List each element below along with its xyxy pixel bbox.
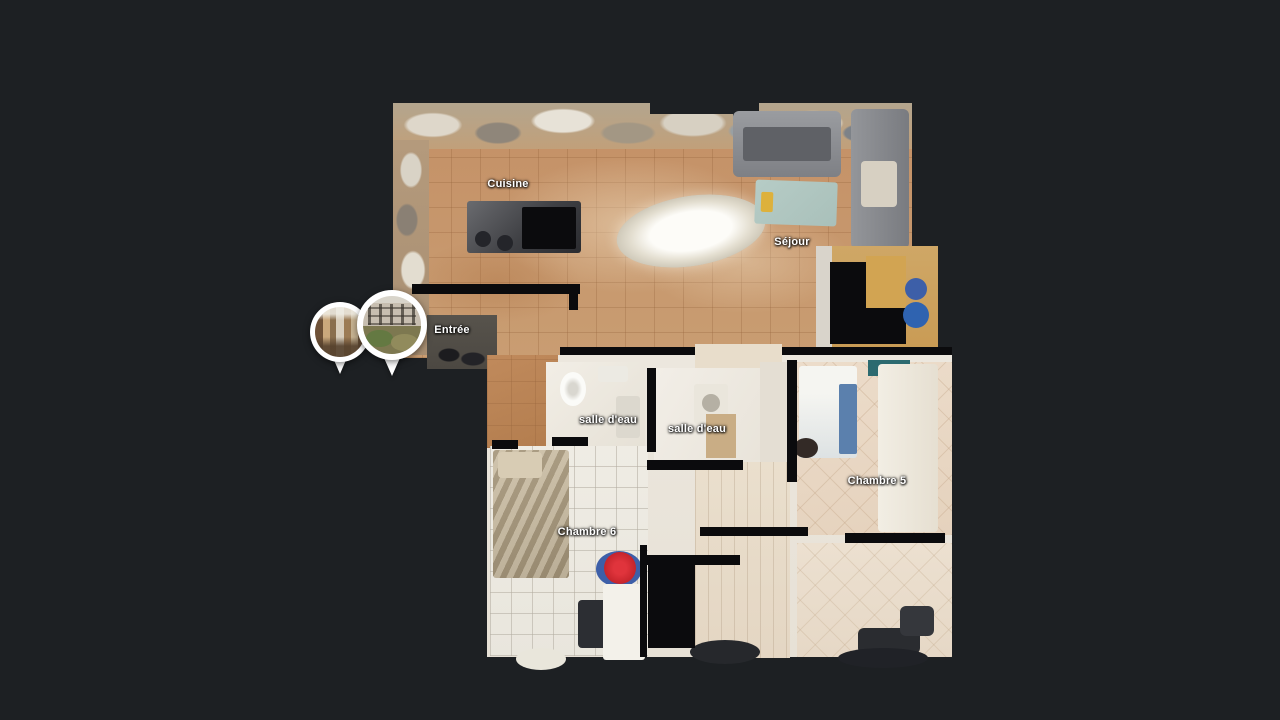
- sofa: [851, 109, 909, 249]
- stool: [497, 235, 513, 251]
- building-windows: [368, 304, 417, 325]
- sink: [598, 366, 628, 382]
- room-label-chambre-5: Chambre 5: [848, 475, 907, 487]
- sofa-cushion: [861, 161, 897, 207]
- sofa-seat: [743, 127, 831, 161]
- room-label-sejour: Séjour: [774, 236, 809, 248]
- floorplan[interactable]: Cuisine Séjour Entrée salle d'eau salle …: [0, 0, 1280, 720]
- wall: [647, 460, 743, 470]
- desk: [603, 584, 645, 660]
- photo-pin-building[interactable]: [357, 290, 427, 390]
- lawn: [391, 334, 418, 350]
- chair: [905, 278, 927, 300]
- stool: [475, 231, 491, 247]
- kitchen-island: [467, 201, 581, 253]
- wall: [412, 284, 580, 294]
- wall: [787, 360, 797, 482]
- building-photo-thumbnail: [363, 296, 421, 354]
- room-label-entree: Entrée: [434, 324, 469, 336]
- wall: [700, 527, 808, 536]
- wall: [492, 440, 518, 449]
- bed: [878, 364, 938, 532]
- coffee-table-object: [761, 192, 774, 212]
- wall: [647, 368, 656, 452]
- bathroom-1-floor: [546, 362, 645, 446]
- washing-machine-door: [702, 394, 720, 412]
- wall: [569, 284, 578, 310]
- scan-hole: [522, 207, 576, 249]
- alcove-floor-patch: [866, 256, 906, 308]
- wall: [640, 545, 647, 657]
- bathroom-2-floor: [654, 368, 760, 460]
- furniture-clutter: [900, 606, 934, 636]
- chair: [604, 552, 636, 584]
- cabinet: [706, 414, 736, 458]
- floorplan-viewer[interactable]: Cuisine Séjour Entrée salle d'eau salle …: [0, 0, 1280, 720]
- furniture-clutter: [838, 648, 928, 668]
- coffee-table: [754, 180, 837, 227]
- lawn: [366, 330, 393, 347]
- furniture-clutter: [690, 640, 760, 664]
- chair: [903, 302, 929, 328]
- scan-gap: [650, 96, 740, 114]
- toilet: [560, 372, 586, 406]
- wall: [552, 437, 588, 446]
- floor-object: [794, 438, 818, 458]
- furniture-clutter: [516, 648, 566, 670]
- room-label-salle-deau-2: salle d'eau: [668, 423, 726, 435]
- map-pin-icon: [357, 290, 427, 360]
- room-label-cuisine: Cuisine: [487, 178, 528, 190]
- pillow: [498, 452, 542, 478]
- sofa: [733, 111, 841, 177]
- room-label-salle-deau-1: salle d'eau: [579, 414, 637, 426]
- bed-blanket: [839, 384, 857, 454]
- wall: [648, 564, 695, 648]
- wall: [845, 533, 945, 543]
- room-label-chambre-6: Chambre 6: [558, 526, 617, 538]
